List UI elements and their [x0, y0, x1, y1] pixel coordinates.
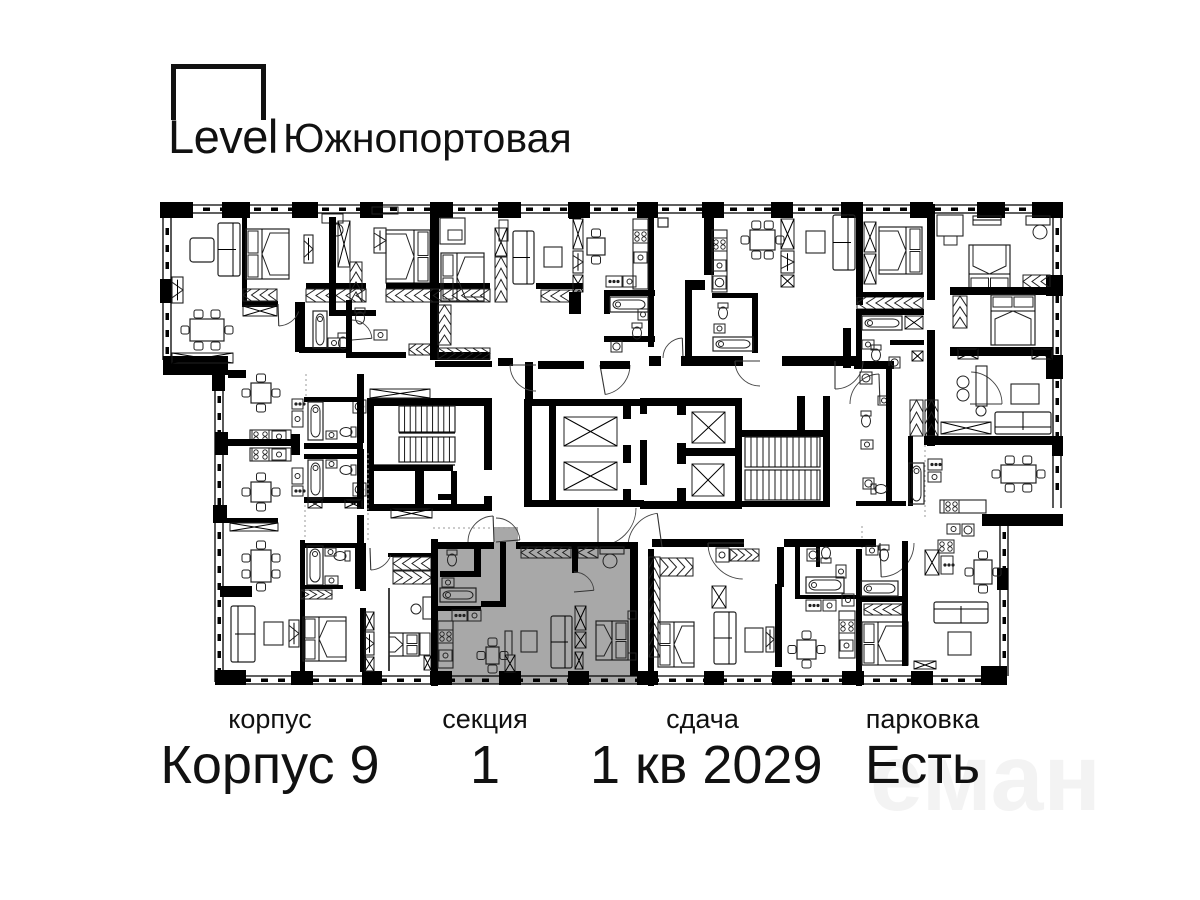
svg-text:Южнопортовая: Южнопортовая	[283, 115, 572, 161]
svg-text:Level: Level	[168, 110, 278, 163]
